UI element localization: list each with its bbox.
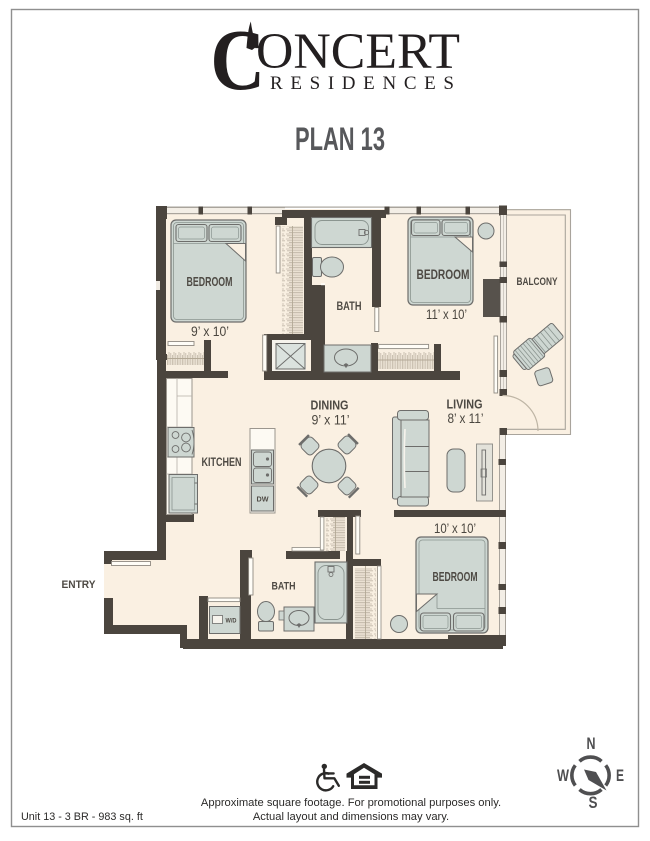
svg-text:BATH: BATH bbox=[272, 581, 296, 593]
svg-text:BALCONY: BALCONY bbox=[517, 276, 558, 288]
svg-text:8’ x 11’: 8’ x 11’ bbox=[448, 411, 484, 426]
svg-text:9’ x 10’: 9’ x 10’ bbox=[191, 324, 229, 339]
svg-text:LIVING: LIVING bbox=[447, 397, 483, 412]
svg-text:E: E bbox=[616, 766, 624, 785]
svg-text:9’ x 11’: 9’ x 11’ bbox=[312, 413, 350, 428]
svg-text:Actual layout and dimensions m: Actual layout and dimensions may vary. bbox=[253, 811, 449, 823]
svg-text:Approximate square footage. Fo: Approximate square footage. For promotio… bbox=[201, 797, 501, 809]
svg-text:DINING: DINING bbox=[311, 398, 349, 413]
svg-text:W/D: W/D bbox=[226, 619, 238, 625]
svg-text:S: S bbox=[589, 793, 598, 812]
svg-text:11’ x 10’: 11’ x 10’ bbox=[426, 307, 467, 322]
svg-text:BATH: BATH bbox=[337, 299, 362, 313]
svg-text:PLAN 13: PLAN 13 bbox=[295, 121, 385, 157]
svg-text:N: N bbox=[587, 734, 596, 753]
svg-text:BEDROOM: BEDROOM bbox=[187, 275, 233, 289]
svg-text:Unit 13 - 3 BR - 983 sq. ft: Unit 13 - 3 BR - 983 sq. ft bbox=[21, 811, 143, 823]
svg-text:10’ x 10’: 10’ x 10’ bbox=[434, 521, 476, 536]
svg-text:DW: DW bbox=[257, 497, 269, 504]
svg-text:W: W bbox=[557, 766, 570, 785]
svg-text:BEDROOM: BEDROOM bbox=[417, 267, 470, 282]
svg-text:BEDROOM: BEDROOM bbox=[433, 570, 478, 584]
svg-text:ENTRY: ENTRY bbox=[62, 579, 97, 591]
svg-text:ONCERT: ONCERT bbox=[256, 24, 460, 80]
svg-text:KITCHEN: KITCHEN bbox=[202, 457, 242, 469]
